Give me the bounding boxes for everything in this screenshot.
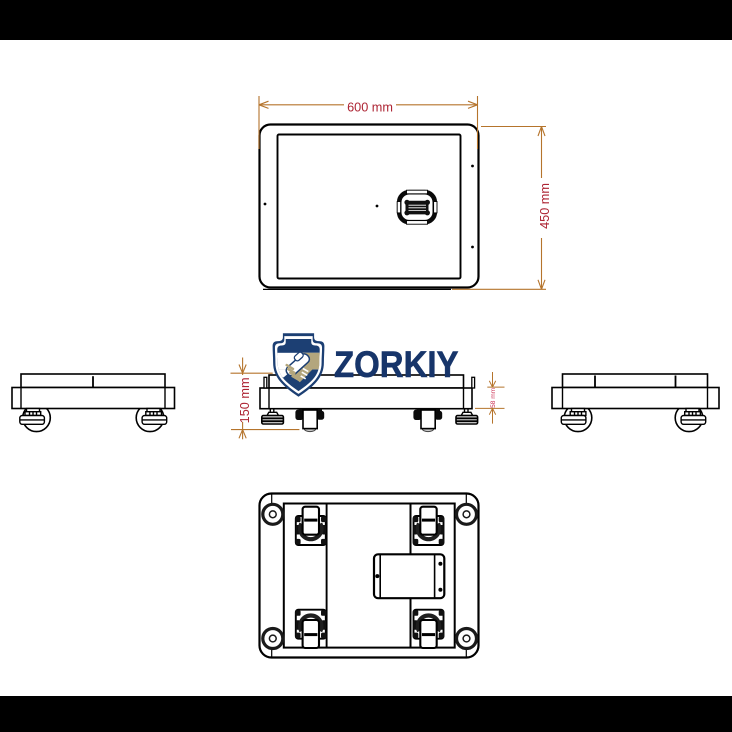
svg-text:58 mm: 58 mm [490, 387, 497, 408]
svg-text:600 mm: 600 mm [347, 101, 393, 115]
svg-text:450 mm: 450 mm [538, 183, 552, 229]
svg-text:150 mm: 150 mm [238, 377, 252, 423]
svg-text:ZORKIY: ZORKIY [334, 344, 459, 385]
